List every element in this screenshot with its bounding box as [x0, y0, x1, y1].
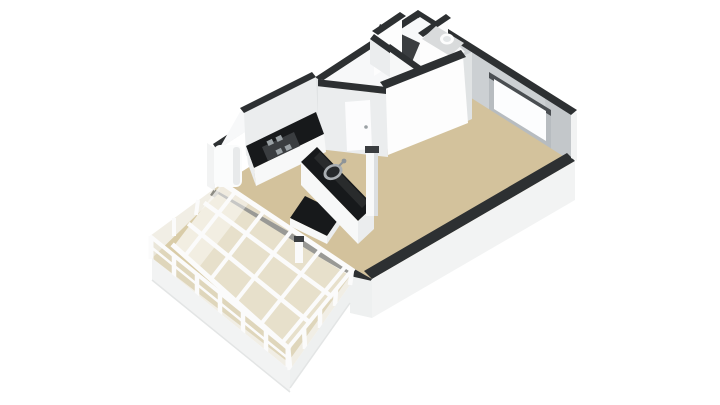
floorplan-svg [0, 0, 720, 405]
floorplan-render [0, 0, 720, 405]
door-handle [364, 125, 368, 129]
fridge-side-shade [233, 147, 240, 185]
bathroom-door [345, 100, 372, 151]
extractor-column [365, 146, 379, 216]
east-corner-wall-end [571, 110, 577, 161]
nw-wall-post [196, 200, 198, 215]
column-side-shade [374, 150, 378, 216]
se-wall-post [288, 348, 290, 370]
fridge [214, 145, 242, 187]
toilet-bowl [443, 36, 451, 42]
sw-exterior-slab-face [350, 276, 372, 318]
attach-post-cap [294, 236, 304, 242]
attach-post [295, 240, 303, 263]
column-cap [365, 146, 379, 153]
west-corner-wall-end [207, 143, 215, 191]
